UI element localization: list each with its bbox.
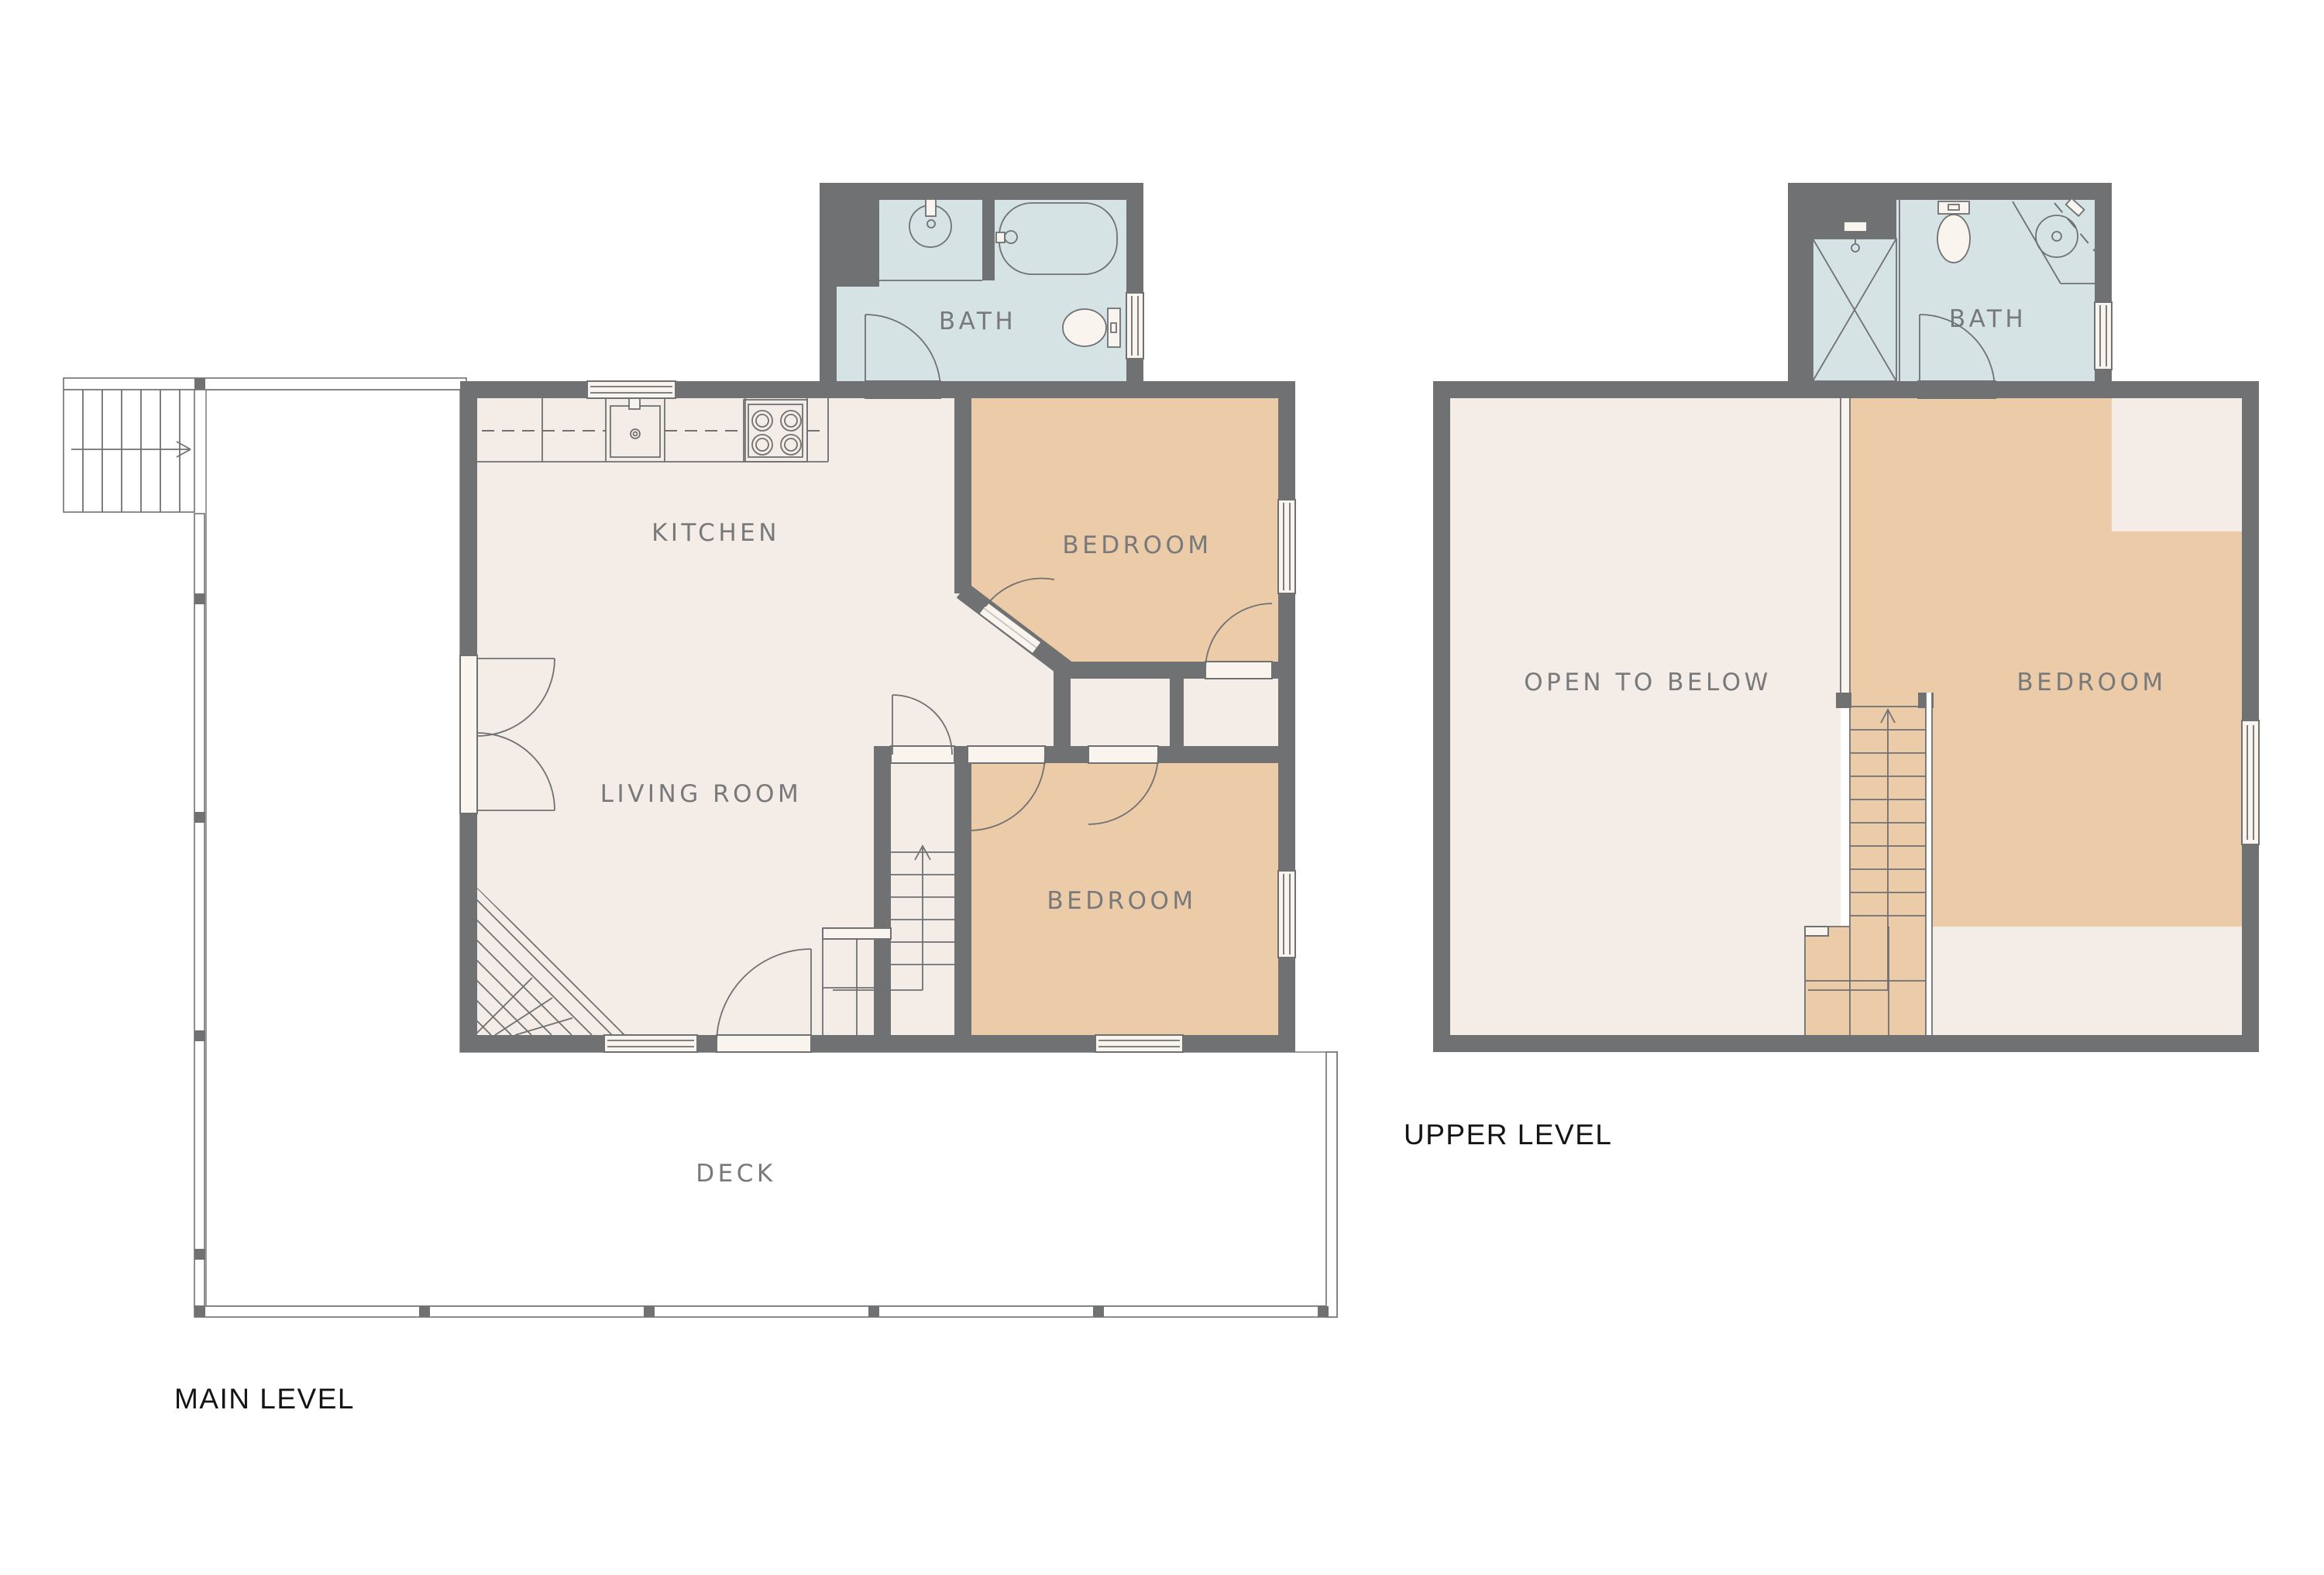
toilet-icon (1063, 308, 1120, 347)
living-room-window (604, 1035, 697, 1052)
open-to-below-floor (1450, 398, 1841, 1035)
deck-label: DECK (696, 1160, 775, 1188)
upper-level-plan: BATH (1404, 183, 2259, 1150)
upper-bath-label: BATH (1949, 305, 2027, 333)
deck-rail-top (64, 378, 466, 390)
upper-bedroom-nook (2112, 398, 2242, 531)
bath-window (1126, 293, 1143, 359)
floor-plan-page: BATH (0, 0, 2324, 1575)
upper-toilet-icon (1937, 201, 1970, 263)
deck-rail-bottom (194, 1306, 1337, 1317)
main-level-title: MAIN LEVEL (174, 1383, 355, 1415)
upper-bath: BATH (1788, 183, 2112, 398)
deck-rail-left (194, 514, 205, 1306)
upper-bedroom-label: BEDROOM (2016, 669, 2166, 696)
floor-plan-svg: BATH (0, 0, 2324, 1575)
kitchen-label: KITCHEN (651, 519, 780, 547)
bedroom-top-label: BEDROOM (1062, 531, 1212, 559)
bedroom-bottom-window-right (1278, 871, 1295, 958)
upper-bedroom-floor-strip (1932, 927, 2242, 1035)
living-room-label: LIVING ROOM (600, 780, 802, 808)
upper-bath-window (2095, 302, 2112, 370)
main-bath-label: BATH (939, 308, 1016, 335)
stair-landing-cap (823, 928, 891, 939)
exterior-stairs (64, 390, 194, 512)
deck-rail-right (1326, 1052, 1337, 1317)
bedroom-bottom-label: BEDROOM (1047, 887, 1196, 915)
upper-landing-cap (1805, 927, 1828, 936)
upper-bedroom-window (2242, 720, 2259, 844)
open-to-below-label: OPEN TO BELOW (1524, 669, 1772, 696)
bedroom-top-window (1278, 500, 1295, 593)
kitchen-window (587, 381, 676, 398)
bedroom-bottom-window-bottom (1095, 1035, 1183, 1052)
upper-level-title: UPPER LEVEL (1404, 1119, 1612, 1150)
main-level-plan: BATH (64, 183, 1337, 1415)
main-bath: BATH (820, 183, 1143, 398)
